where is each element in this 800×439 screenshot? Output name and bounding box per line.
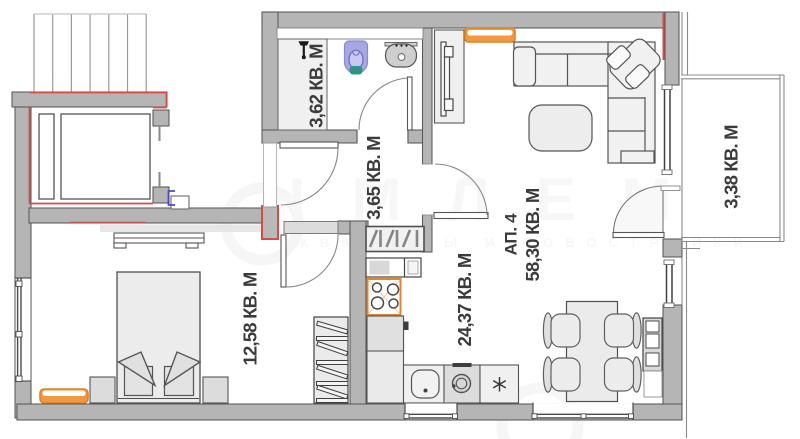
svg-text:24,37 КВ. М: 24,37 КВ. М — [454, 253, 475, 346]
svg-text:12,58 КВ. М: 12,58 КВ. М — [240, 272, 261, 365]
svg-text:58,30 КВ. М: 58,30 КВ. М — [522, 188, 543, 281]
svg-text:АП. 4: АП. 4 — [502, 213, 521, 256]
svg-text:3,38 КВ. М: 3,38 КВ. М — [721, 125, 742, 209]
svg-text:3,62 КВ. М: 3,62 КВ. М — [306, 44, 327, 128]
svg-text:3,65 КВ. М: 3,65 КВ. М — [363, 136, 384, 220]
